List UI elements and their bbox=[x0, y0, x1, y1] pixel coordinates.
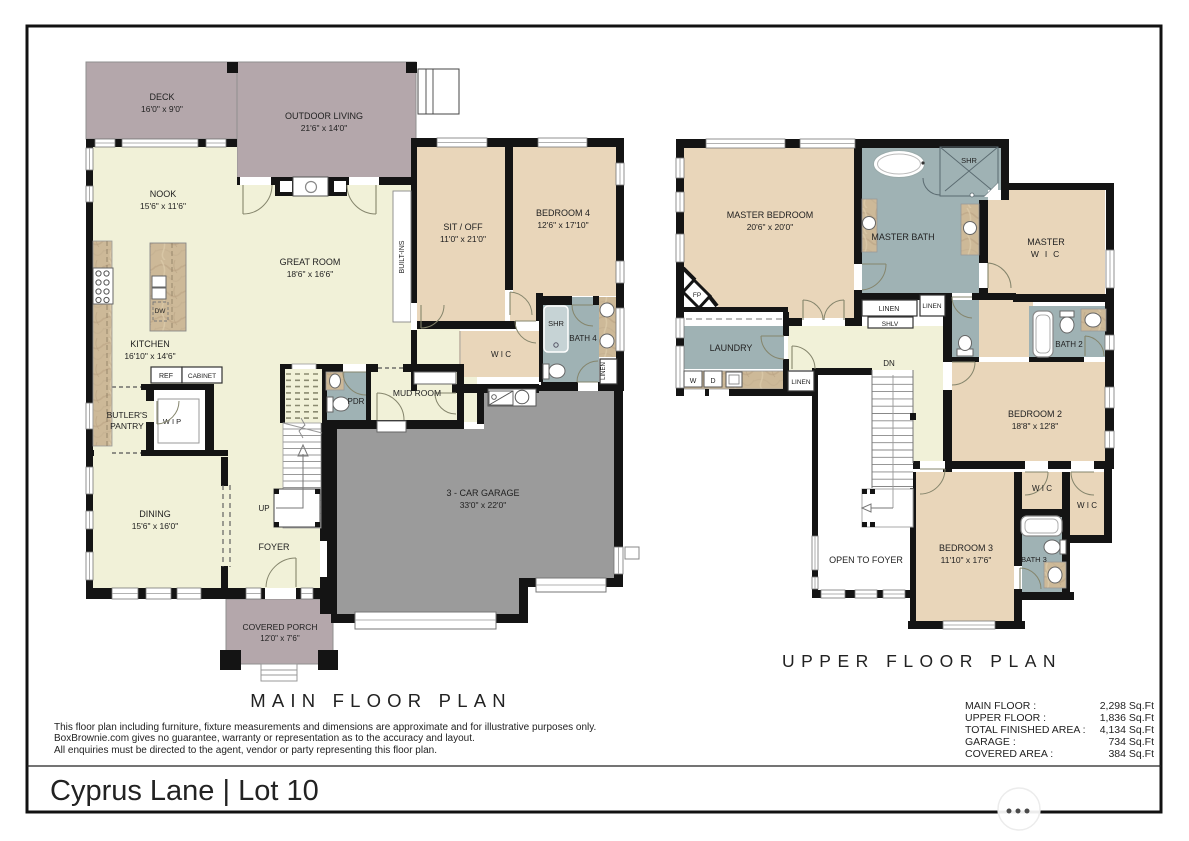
svg-text:This floor plan including furn: This floor plan including furniture, fix… bbox=[54, 722, 596, 733]
svg-text:BUTLER'S: BUTLER'S bbox=[107, 410, 148, 420]
svg-text:COVERED AREA :: COVERED AREA : bbox=[965, 748, 1053, 760]
svg-text:MAIN FLOOR :: MAIN FLOOR : bbox=[965, 700, 1036, 712]
svg-text:REF: REF bbox=[159, 373, 173, 380]
svg-text:18'8" x 12'8": 18'8" x 12'8" bbox=[1012, 421, 1059, 431]
svg-text:GARAGE :: GARAGE : bbox=[965, 736, 1016, 748]
svg-text:15'6" x 11'6": 15'6" x 11'6" bbox=[140, 201, 186, 211]
svg-text:11'10" x 17'6": 11'10" x 17'6" bbox=[941, 555, 992, 565]
svg-text:OPEN TO FOYER: OPEN TO FOYER bbox=[829, 555, 903, 565]
svg-text:All enquiries must be directed: All enquiries must be directed to the ag… bbox=[54, 745, 437, 756]
svg-text:MASTER: MASTER bbox=[1027, 237, 1065, 247]
svg-text:15'6" x 16'0": 15'6" x 16'0" bbox=[132, 521, 179, 531]
svg-text:FP: FP bbox=[693, 292, 701, 299]
svg-text:MUD ROOM: MUD ROOM bbox=[393, 388, 441, 398]
svg-text:734 Sq.Ft: 734 Sq.Ft bbox=[1108, 736, 1154, 748]
svg-text:12'0" x 7'6": 12'0" x 7'6" bbox=[260, 634, 300, 643]
svg-text:33'0" x 22'0": 33'0" x 22'0" bbox=[460, 500, 507, 510]
svg-text:DINING: DINING bbox=[139, 509, 171, 519]
svg-text:FOYER: FOYER bbox=[258, 542, 290, 552]
svg-text:3 - CAR GARAGE: 3 - CAR GARAGE bbox=[446, 488, 519, 498]
svg-text:21'6" x 14'0": 21'6" x 14'0" bbox=[301, 123, 348, 133]
svg-text:SHR: SHR bbox=[548, 319, 564, 328]
svg-text:UPPER FLOOR PLAN: UPPER FLOOR PLAN bbox=[782, 651, 1062, 671]
svg-text:BEDROOM 3: BEDROOM 3 bbox=[939, 543, 993, 553]
svg-text:BATH 3: BATH 3 bbox=[1021, 555, 1047, 564]
svg-text:NOOK: NOOK bbox=[150, 189, 177, 199]
svg-text:BEDROOM 4: BEDROOM 4 bbox=[536, 208, 590, 218]
svg-text:384 Sq.Ft: 384 Sq.Ft bbox=[1108, 748, 1154, 760]
svg-text:1,836 Sq.Ft: 1,836 Sq.Ft bbox=[1100, 712, 1154, 724]
svg-text:LINEN: LINEN bbox=[879, 306, 900, 313]
svg-text:BATH 2: BATH 2 bbox=[1055, 340, 1083, 349]
svg-text:LAUNDRY: LAUNDRY bbox=[710, 343, 753, 353]
svg-text:2,298 Sq.Ft: 2,298 Sq.Ft bbox=[1100, 700, 1154, 712]
svg-text:KITCHEN: KITCHEN bbox=[130, 339, 170, 349]
svg-text:20'6" x 20'0": 20'6" x 20'0" bbox=[747, 222, 794, 232]
svg-text:16'0" x 9'0": 16'0" x 9'0" bbox=[141, 104, 183, 114]
svg-text:DECK: DECK bbox=[149, 92, 174, 102]
svg-text:W I C: W I C bbox=[491, 350, 511, 359]
svg-text:OUTDOOR LIVING: OUTDOOR LIVING bbox=[285, 111, 363, 121]
svg-text:BoxBrownie.com gives no guaran: BoxBrownie.com gives no guarantee, warra… bbox=[54, 733, 475, 744]
svg-text:COVERED PORCH: COVERED PORCH bbox=[242, 622, 317, 632]
svg-text:BEDROOM 2: BEDROOM 2 bbox=[1008, 409, 1062, 419]
svg-text:SHR: SHR bbox=[961, 156, 977, 165]
svg-text:GREAT ROOM: GREAT ROOM bbox=[280, 257, 341, 267]
svg-text:TOTAL FINISHED AREA :: TOTAL FINISHED AREA : bbox=[965, 724, 1086, 736]
svg-text:PANTRY: PANTRY bbox=[110, 421, 144, 431]
svg-text:SHLV: SHLV bbox=[882, 321, 899, 328]
svg-text:UPPER FLOOR :: UPPER FLOOR : bbox=[965, 712, 1046, 724]
svg-text:W I C: W I C bbox=[1032, 484, 1052, 493]
svg-text:UP: UP bbox=[258, 504, 269, 513]
svg-text:LINEN: LINEN bbox=[601, 362, 607, 380]
svg-text:MAIN FLOOR PLAN: MAIN FLOOR PLAN bbox=[250, 690, 512, 711]
svg-text:18'6" x 16'6": 18'6" x 16'6" bbox=[287, 269, 334, 279]
svg-text:MASTER BATH: MASTER BATH bbox=[871, 232, 934, 242]
svg-text:DW: DW bbox=[155, 308, 167, 315]
svg-text:SIT / OFF: SIT / OFF bbox=[443, 222, 483, 232]
svg-text:LINEN: LINEN bbox=[922, 303, 941, 310]
svg-text:W: W bbox=[690, 378, 697, 385]
svg-text:W I C: W I C bbox=[1031, 249, 1061, 259]
svg-text:DN: DN bbox=[883, 359, 895, 368]
svg-text:12'6" x 17'10": 12'6" x 17'10" bbox=[537, 220, 588, 230]
svg-text:Cyprus Lane | Lot 10: Cyprus Lane | Lot 10 bbox=[50, 775, 319, 807]
svg-text:LINEN: LINEN bbox=[791, 379, 810, 386]
svg-text:MASTER BEDROOM: MASTER BEDROOM bbox=[727, 210, 814, 220]
svg-text:PDR: PDR bbox=[348, 397, 365, 406]
svg-text:BATH 4: BATH 4 bbox=[569, 334, 597, 343]
svg-text:16'10" x 14'6": 16'10" x 14'6" bbox=[124, 351, 175, 361]
svg-text:W I C: W I C bbox=[1077, 501, 1097, 510]
svg-text:D: D bbox=[710, 378, 715, 385]
svg-text:BUILT-INS: BUILT-INS bbox=[399, 240, 406, 273]
svg-text:4,134 Sq.Ft: 4,134 Sq.Ft bbox=[1100, 724, 1154, 736]
svg-text:11'0" x 21'0": 11'0" x 21'0" bbox=[440, 234, 486, 244]
svg-text:CABINET: CABINET bbox=[188, 373, 216, 380]
